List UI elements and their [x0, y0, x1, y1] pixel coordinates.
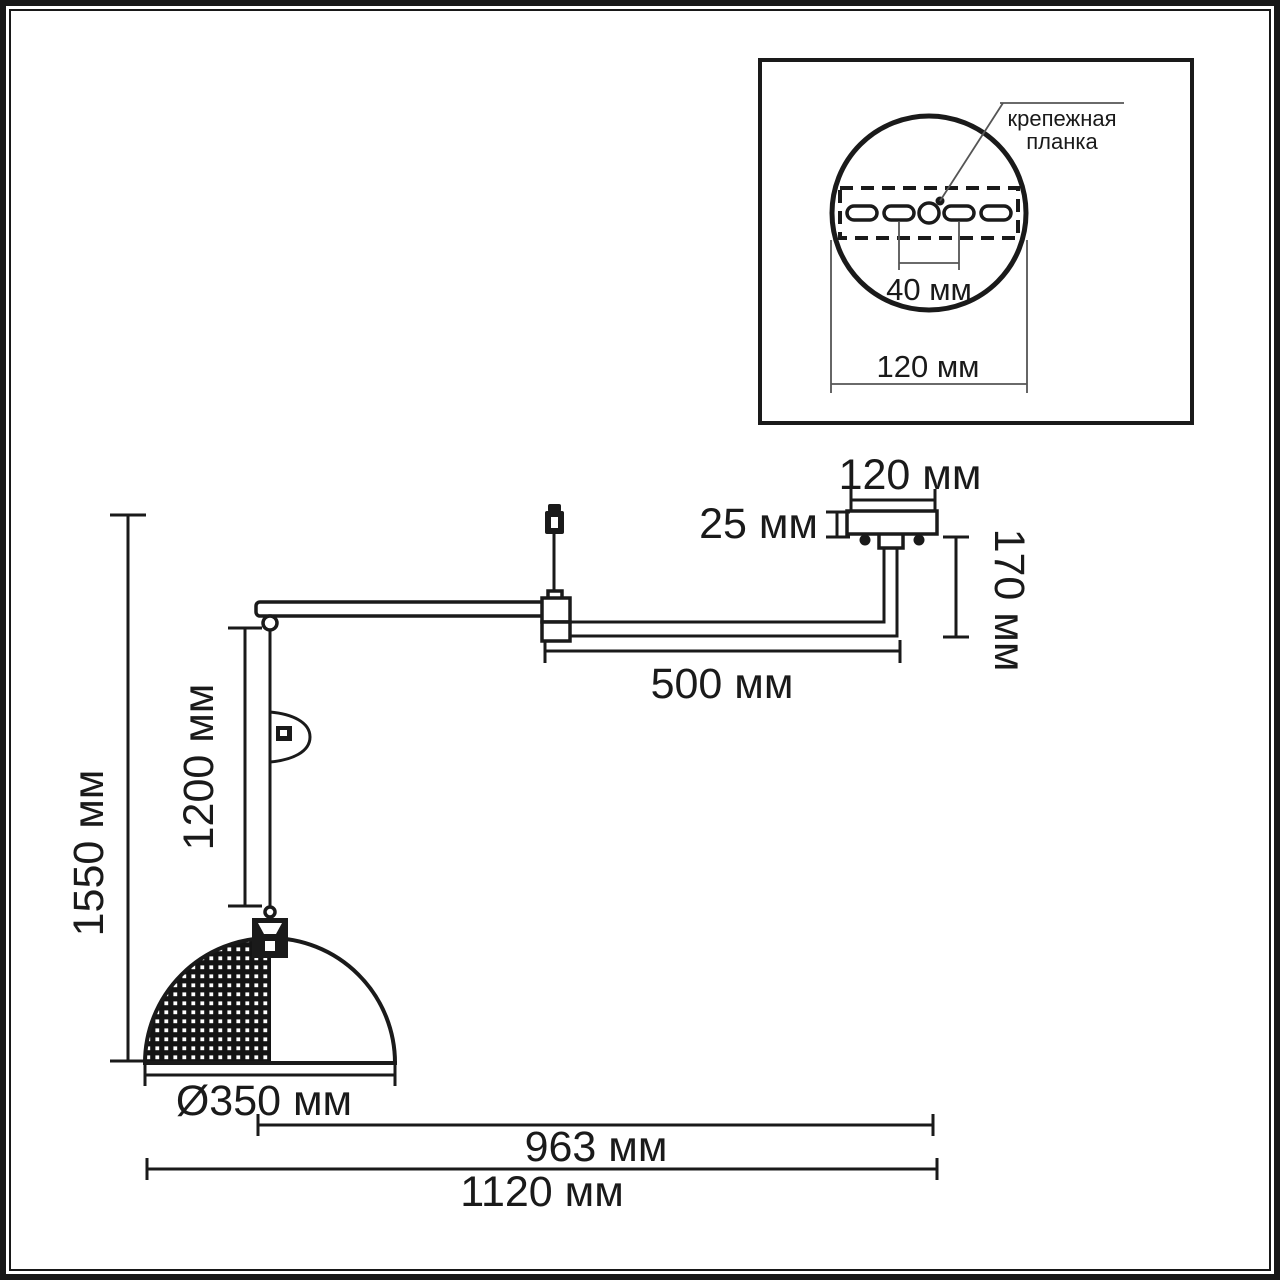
dimension-cord-length: 1200 мм: [175, 628, 262, 906]
canopy-height-label: 25 мм: [699, 500, 818, 548]
plug-cap: [548, 504, 561, 512]
fixture-drawing: 120 мм 25 мм 170 мм 500 мм: [65, 451, 1033, 1216]
canopy-screw-left: [860, 535, 871, 546]
lampshade: [143, 907, 397, 1063]
center-hole: [919, 203, 939, 223]
slot-3: [944, 206, 974, 220]
slot-1: [847, 206, 877, 220]
canopy-screw-right: [914, 535, 925, 546]
slot-4: [981, 206, 1011, 220]
slot-spacing-label: 40 мм: [886, 272, 972, 307]
shade-ring: [265, 907, 275, 917]
arm-eyelet: [263, 616, 277, 630]
dimension-stem-height: 170 мм: [943, 529, 1033, 672]
lower-arm-tube: [566, 548, 897, 636]
slot-2: [884, 206, 914, 220]
reach-label: 963 мм: [525, 1123, 668, 1171]
overall-width-label: 1120 мм: [460, 1168, 624, 1216]
stem-height-label: 170 мм: [985, 529, 1033, 672]
lamp-dimension-diagram-page: крепежная планка 40 мм 120 мм: [0, 0, 1280, 1280]
arm-bar: [256, 602, 544, 616]
block-upper: [542, 598, 570, 622]
arm-length-label: 500 мм: [651, 660, 794, 708]
plug-window: [551, 517, 558, 528]
overall-height-label: 1550 мм: [65, 770, 113, 937]
inset-detail: крепежная планка 40 мм 120 мм: [760, 60, 1192, 423]
junction-block: [542, 504, 570, 641]
dimension-arm-length: 500 мм: [545, 640, 900, 708]
canopy-body: [847, 511, 937, 534]
dimension-overall-height: 1550 мм: [65, 515, 146, 1061]
cord-clamp-hole: [280, 730, 287, 736]
plate-width-label: 120 мм: [877, 349, 980, 384]
block-lower: [542, 622, 570, 641]
shade-diameter-label: Ø350 мм: [176, 1077, 352, 1125]
mounting-slots: [847, 203, 1011, 223]
upper-arm: [256, 602, 544, 630]
mounting-plate-callout-line1: крепежная: [1007, 106, 1116, 131]
cord-length-label: 1200 мм: [175, 684, 223, 851]
shade-mount-hole: [265, 941, 275, 951]
canopy-assembly: [847, 511, 937, 548]
dimension-canopy-width: 120 мм: [839, 451, 982, 511]
dimension-shade-diameter: Ø350 мм: [145, 1065, 395, 1125]
technical-drawing: крепежная планка 40 мм 120 мм: [0, 0, 1280, 1280]
canopy-width-label: 120 мм: [839, 451, 982, 499]
suspension-cord: [270, 630, 310, 907]
dimension-canopy-height: 25 мм: [699, 500, 850, 548]
mounting-plate-callout-line2: планка: [1026, 129, 1098, 154]
dimension-reach: 963 мм: [258, 1114, 933, 1171]
